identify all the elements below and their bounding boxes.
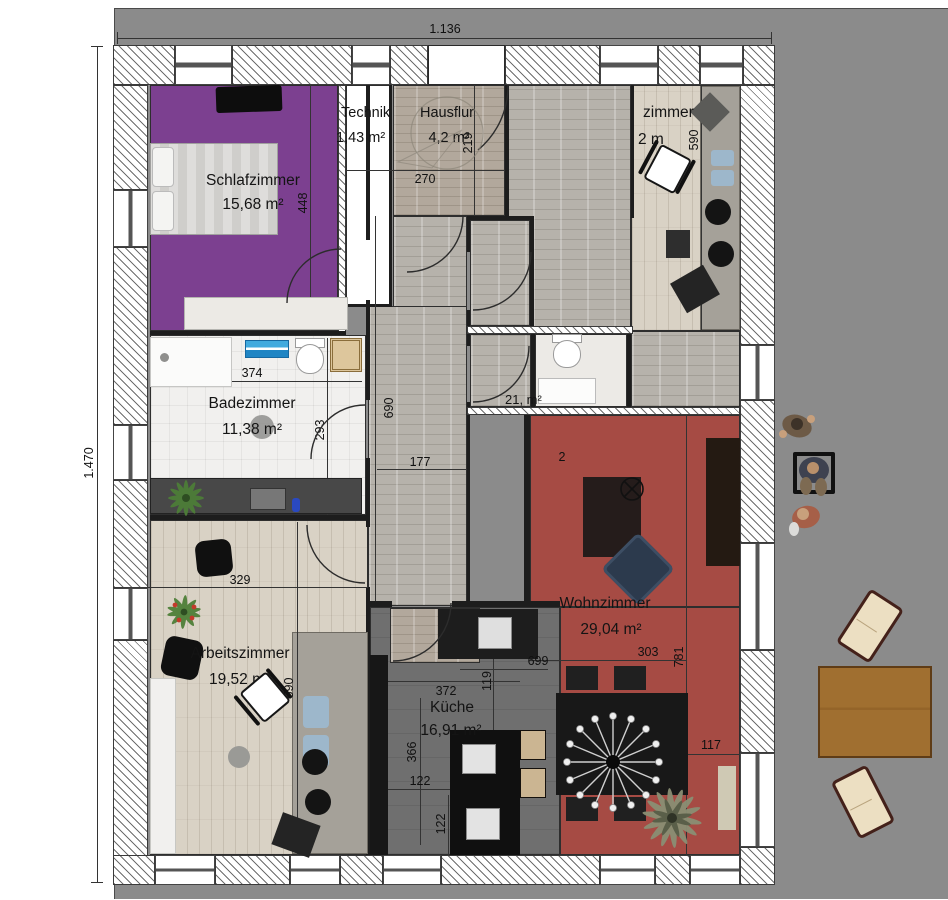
interior-wall <box>150 331 346 335</box>
wall-segment <box>740 847 775 885</box>
round-rug <box>228 746 250 768</box>
dimension-line <box>346 170 505 171</box>
room-label-hausflur: Hausflur <box>420 105 474 121</box>
dimension-tick <box>91 882 103 883</box>
room-label-badezimmer: Badezimmer <box>209 395 296 413</box>
floorplan-canvas: 1.136 1.470 <box>0 0 948 900</box>
toilet-bowl[interactable] <box>553 340 581 368</box>
stool[interactable] <box>302 749 328 775</box>
interior-wall <box>530 218 534 326</box>
window[interactable] <box>383 855 441 885</box>
bathtub[interactable] <box>150 337 232 387</box>
dimension-line <box>530 660 686 661</box>
pillow[interactable] <box>152 191 174 231</box>
dimension-line <box>297 522 298 855</box>
stool[interactable] <box>305 789 331 815</box>
dining-chair-beige[interactable] <box>520 730 546 760</box>
wall-segment <box>215 855 290 885</box>
wall-segment <box>113 247 148 425</box>
wall-segment <box>390 45 428 85</box>
wardrobe[interactable] <box>184 297 348 330</box>
island-sink[interactable] <box>466 808 500 840</box>
tv-board[interactable] <box>216 85 283 113</box>
interior-wall <box>524 415 530 607</box>
dim-label-448: 448 <box>296 193 310 214</box>
overall-height-label: 1.470 <box>82 447 96 478</box>
terrace-door[interactable] <box>740 753 775 847</box>
overall-width-label: 1.136 <box>429 22 460 36</box>
wall-segment <box>655 855 690 885</box>
room-label-zimmer: zimmer <box>643 104 694 122</box>
door-mat <box>718 766 736 830</box>
interior-wall <box>366 300 370 400</box>
armchair[interactable] <box>194 538 234 578</box>
window[interactable] <box>155 855 215 885</box>
dimension-line <box>310 85 311 331</box>
stool[interactable] <box>705 199 731 225</box>
dining-chair[interactable] <box>614 797 646 821</box>
dim-label-372: 372 <box>436 684 457 698</box>
tall-cabinets[interactable] <box>370 655 388 855</box>
window[interactable] <box>690 855 740 885</box>
dimension-line <box>118 38 772 39</box>
room-label-kueche: Küche <box>430 699 474 717</box>
cabinet[interactable] <box>666 230 690 258</box>
chair-blue[interactable] <box>303 696 329 728</box>
dimension-line <box>148 587 368 588</box>
dimension-line <box>383 789 453 790</box>
interior-wall <box>631 85 634 218</box>
room-label-arbeitszimmer: Arbeitszimmer <box>190 645 289 663</box>
dining-chair[interactable] <box>566 666 598 690</box>
dim-label-219: 219 <box>461 133 475 154</box>
dimension-line <box>97 47 98 883</box>
dim-label-122b: 122 <box>434 814 448 835</box>
room-label-schlafzimmer: Schlafzimmer <box>206 172 300 190</box>
interior-wall <box>467 216 470 252</box>
wall-segment <box>340 855 383 885</box>
wall-segment <box>505 45 600 85</box>
dim-label-329: 329 <box>230 573 251 587</box>
dimension-line <box>377 469 467 470</box>
wall-segment <box>338 85 346 333</box>
stool[interactable] <box>708 241 734 267</box>
wall-segment <box>658 45 700 85</box>
wall-segment <box>232 45 352 85</box>
window[interactable] <box>113 425 148 480</box>
closet[interactable] <box>150 678 176 854</box>
dining-chair-beige[interactable] <box>520 768 546 798</box>
dim-label-374: 374 <box>242 366 263 380</box>
dim-label-303: 303 <box>638 645 659 659</box>
window[interactable] <box>352 45 390 85</box>
dimension-line <box>420 698 421 845</box>
dimension-line <box>375 216 376 601</box>
room-label-technik: Technik <box>341 105 390 121</box>
stray-mark: 2 <box>559 450 566 464</box>
wall-segment <box>740 400 775 543</box>
window[interactable] <box>113 190 148 247</box>
wall-segment <box>740 85 775 345</box>
chair-blue[interactable] <box>711 150 734 166</box>
chair-back <box>850 799 872 811</box>
dim-label-590-zimmer: 590 <box>687 130 701 151</box>
room-area-kueche: 16,91 m² <box>420 722 481 740</box>
sideboard[interactable] <box>706 438 740 566</box>
room-area-schlafzimmer: 15,68 m² <box>222 196 283 214</box>
window[interactable] <box>740 543 775 650</box>
dimension-line <box>493 653 494 738</box>
interior-wall <box>467 402 470 607</box>
wall-segment <box>441 855 600 885</box>
dining-chair[interactable] <box>614 666 646 690</box>
dimension-tick <box>91 46 103 47</box>
dim-label-270: 270 <box>415 172 436 186</box>
wall-segment <box>113 640 148 885</box>
wall-segment <box>467 407 740 415</box>
interior-wall <box>368 601 392 607</box>
room-label-wohnzimmer: Wohnzimmer <box>559 595 650 613</box>
pillow[interactable] <box>152 147 174 187</box>
flur-stone-band[interactable] <box>631 331 740 407</box>
drain-icon <box>160 353 169 362</box>
flur-corridor-upper[interactable] <box>393 216 467 308</box>
wall-segment <box>113 45 175 85</box>
window[interactable] <box>600 855 655 885</box>
dim-label-293: 293 <box>313 420 327 441</box>
interior-wall <box>505 85 509 218</box>
wall-segment <box>113 480 148 588</box>
dimension-tick <box>117 32 118 44</box>
storage-room-1[interactable] <box>470 220 530 326</box>
dim-label-781: 781 <box>672 647 686 668</box>
toilet-bowl[interactable] <box>296 344 324 374</box>
wall-segment <box>113 855 155 885</box>
laundry-basket[interactable] <box>330 338 362 372</box>
island-sink[interactable] <box>462 744 496 774</box>
room-area-technik: 1,43 m² <box>336 130 385 146</box>
room-area-badezimmer: 11,38 m² <box>222 421 282 439</box>
wc-cabinet[interactable] <box>538 378 596 404</box>
window[interactable] <box>600 45 658 85</box>
dimension-line <box>448 795 449 855</box>
kitchen-sink[interactable] <box>478 617 512 649</box>
dimension-line <box>687 754 740 755</box>
chair-blue[interactable] <box>711 170 734 186</box>
chair-back <box>856 619 877 633</box>
dim-label-690: 690 <box>382 398 396 419</box>
dimension-tick <box>771 32 772 44</box>
dimension-line <box>383 681 520 682</box>
wall-segment <box>740 650 775 753</box>
interior-wall <box>627 334 631 407</box>
dining-table[interactable] <box>556 693 688 795</box>
window[interactable] <box>740 345 775 400</box>
interior-wall <box>150 515 368 520</box>
interior-wall <box>467 216 534 220</box>
dimension-line <box>460 669 548 670</box>
shower-shelf[interactable] <box>245 340 289 358</box>
wall-segment <box>743 45 775 85</box>
interior-wall <box>346 304 392 307</box>
dim-label-699: 699 <box>528 654 549 668</box>
wall-segment <box>113 85 148 190</box>
wall-segment <box>467 326 633 334</box>
dim-label-177: 177 <box>410 455 431 469</box>
window[interactable] <box>290 855 340 885</box>
window[interactable] <box>175 45 232 85</box>
window[interactable] <box>700 45 743 85</box>
dining-chair[interactable] <box>566 797 598 821</box>
dim-label-122a: 122 <box>410 774 431 788</box>
vanity-sink[interactable] <box>250 488 286 510</box>
window[interactable] <box>113 588 148 640</box>
room-area-wohnzimmer: 29,04 m² <box>580 621 641 639</box>
entrance-opening[interactable] <box>428 45 505 85</box>
figurine[interactable] <box>292 498 300 512</box>
interior-wall <box>452 601 560 607</box>
outdoor-table[interactable] <box>818 666 932 758</box>
dim-label-366: 366 <box>405 742 419 763</box>
room-area-wc-fragment: 21, m² <box>505 392 542 407</box>
dim-label-117: 117 <box>701 738 721 752</box>
dim-label-119: 119 <box>480 671 494 691</box>
